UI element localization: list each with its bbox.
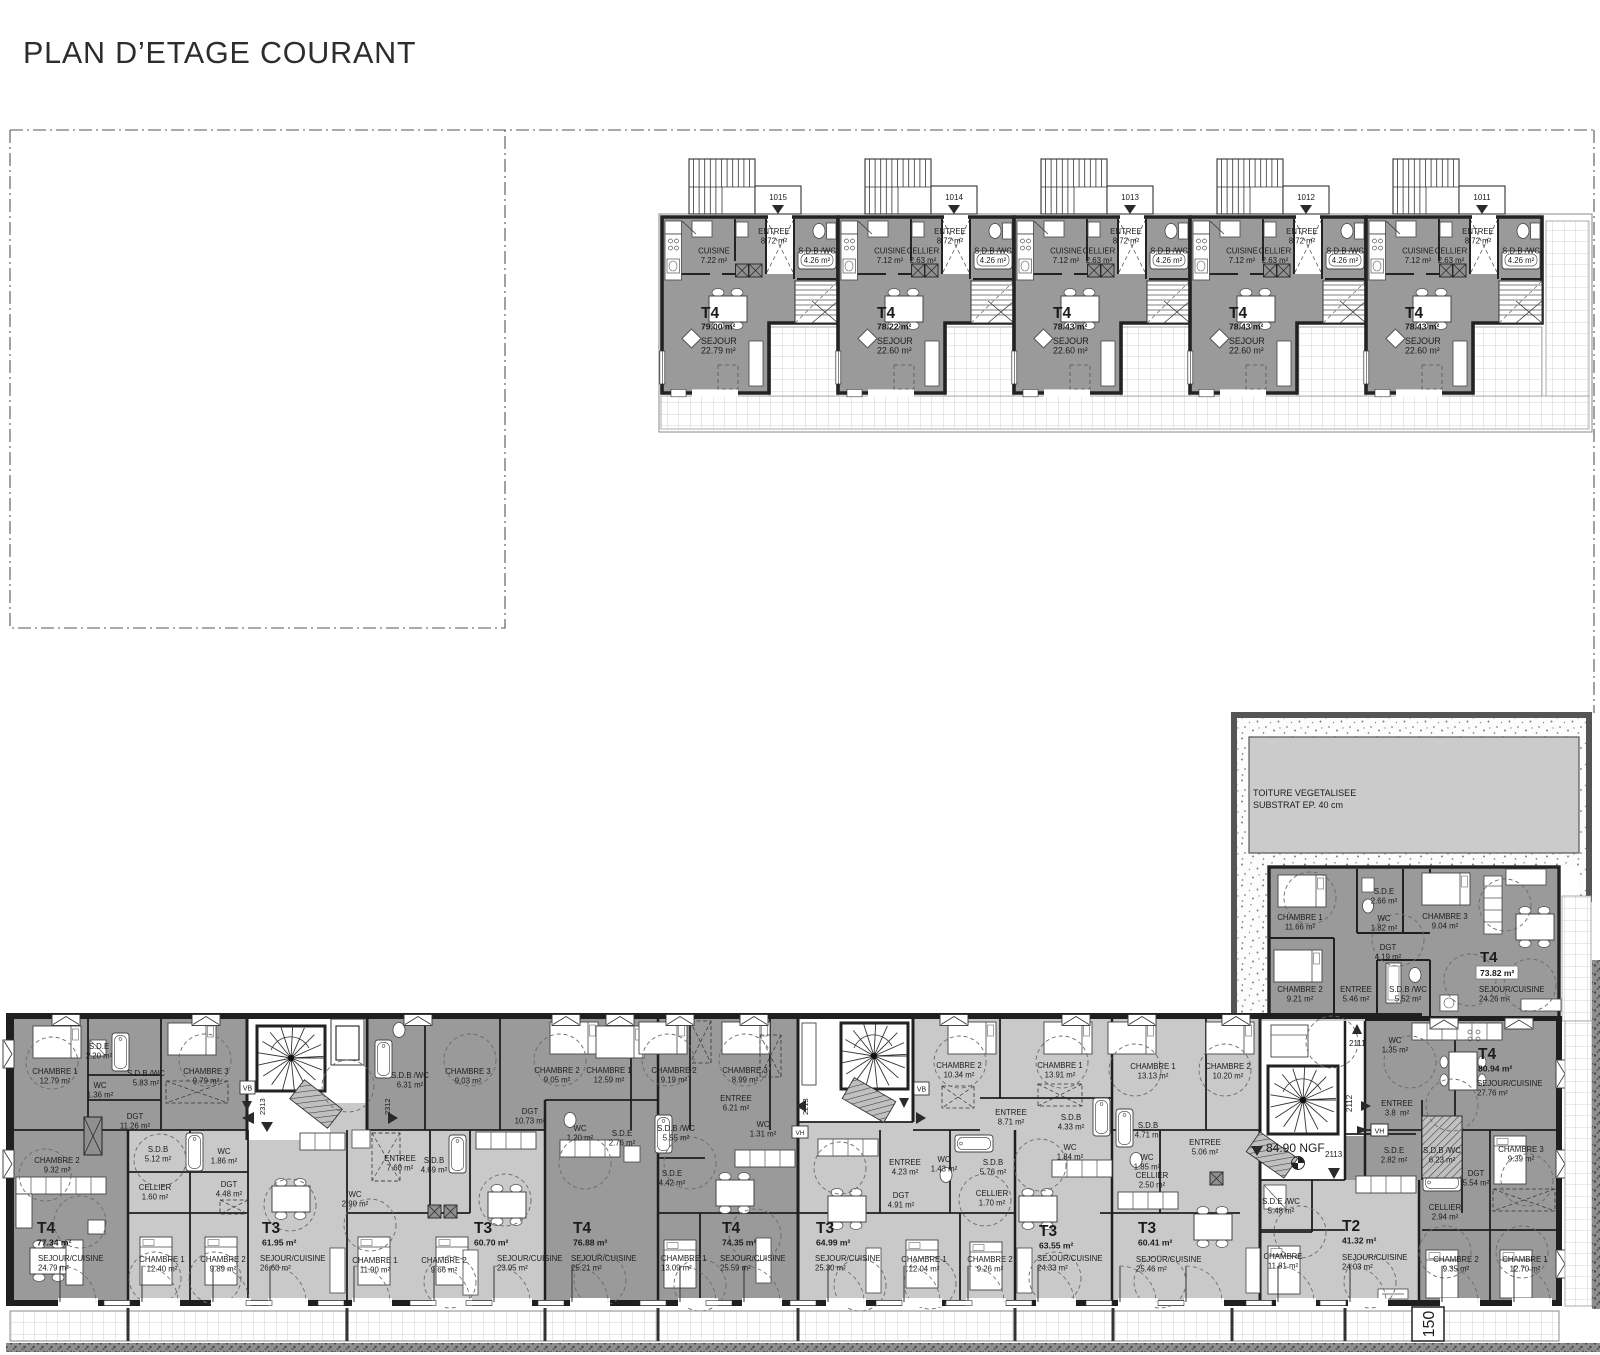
svg-text:12.70 m²: 12.70 m² (1510, 1264, 1541, 1273)
svg-text:DGT: DGT (1380, 943, 1397, 952)
svg-text:T3: T3 (1039, 1223, 1057, 1240)
svg-text:S.D.B: S.D.B (983, 1158, 1003, 1167)
svg-text:25.46 m²: 25.46 m² (1136, 1264, 1167, 1273)
svg-text:9.35 m²: 9.35 m² (1443, 1264, 1470, 1273)
svg-text:SEJOUR/CUISINE: SEJOUR/CUISINE (38, 1254, 103, 1263)
svg-text:5.12 m²: 5.12 m² (145, 1154, 172, 1163)
svg-text:5.46 m²: 5.46 m² (1343, 994, 1370, 1003)
svg-text:S.D.B /WC: S.D.B /WC (1389, 985, 1427, 994)
svg-text:22.60 m²: 22.60 m² (1053, 346, 1088, 356)
svg-text:DGT: DGT (1468, 1169, 1485, 1178)
svg-text:22.60 m²: 22.60 m² (1405, 346, 1440, 356)
svg-text:2.20 m²: 2.20 m² (86, 1051, 113, 1060)
svg-text:2113: 2113 (1325, 1150, 1343, 1159)
svg-text:2.90 m²: 2.90 m² (342, 1199, 369, 1208)
svg-text:76.88 m²: 76.88 m² (573, 1238, 608, 1248)
svg-text:CHAMBRE 3: CHAMBRE 3 (1498, 1145, 1544, 1154)
svg-text:CHAMBRE 1: CHAMBRE 1 (352, 1256, 398, 1265)
svg-text:DGT: DGT (221, 1180, 238, 1189)
svg-text:13.09 m²: 13.09 m² (661, 1263, 692, 1272)
svg-text:T4: T4 (1229, 305, 1247, 322)
svg-text:3.8 m²: 3.8 m² (1385, 1108, 1410, 1117)
svg-text:1.85 m²: 1.85 m² (1134, 1162, 1161, 1171)
svg-text:CHAMBRE 3: CHAMBRE 3 (1422, 912, 1468, 921)
svg-text:WC: WC (1389, 1036, 1402, 1045)
svg-text:WC: WC (757, 1120, 770, 1129)
svg-text:ENTREE: ENTREE (1189, 1138, 1221, 1147)
svg-text:CHAMBRE 1: CHAMBRE 1 (139, 1255, 185, 1264)
svg-text:CHAMBRE 1: CHAMBRE 1 (586, 1066, 632, 1075)
svg-text:23.95 m²: 23.95 m² (497, 1263, 528, 1272)
svg-text:S.D.B /WC: S.D.B /WC (1423, 1146, 1461, 1155)
svg-text:TOITURE VEGETALISEE: TOITURE VEGETALISEE (1253, 788, 1356, 798)
svg-text:1.43 m²: 1.43 m² (931, 1164, 958, 1173)
svg-text:1.70 m²: 1.70 m² (979, 1198, 1006, 1207)
svg-text:VH: VH (1375, 1129, 1385, 1136)
svg-text:PLAN D’ETAGE COURANT: PLAN D’ETAGE COURANT (23, 36, 416, 70)
svg-text:5.76 m²: 5.76 m² (980, 1167, 1007, 1176)
svg-text:SEJOUR/CUISINE: SEJOUR/CUISINE (1477, 1079, 1542, 1088)
svg-text:77.34 m²: 77.34 m² (37, 1238, 72, 1248)
svg-text:CHAMBRE 1: CHAMBRE 1 (661, 1254, 707, 1263)
svg-text:T4: T4 (722, 1220, 740, 1237)
svg-text:CELLIER: CELLIER (907, 247, 940, 256)
svg-text:1.36 m²: 1.36 m² (87, 1090, 114, 1099)
svg-text:5.54 m²: 5.54 m² (1463, 1178, 1490, 1187)
svg-text:2111: 2111 (1349, 1039, 1366, 1048)
svg-text:10.34 m²: 10.34 m² (944, 1070, 975, 1079)
svg-text:ENTREE: ENTREE (889, 1158, 921, 1167)
svg-text:9.19 m²: 9.19 m² (661, 1075, 688, 1084)
svg-text:WC: WC (938, 1155, 951, 1164)
svg-text:CELLIER: CELLIER (1136, 1171, 1169, 1180)
svg-text:4.26 m²: 4.26 m² (1508, 256, 1535, 265)
svg-text:1.86 m²: 1.86 m² (211, 1156, 238, 1165)
svg-text:CELLIER: CELLIER (976, 1189, 1009, 1198)
svg-text:SEJOUR/CUISINE: SEJOUR/CUISINE (815, 1254, 880, 1263)
svg-text:CHAMBRE 1: CHAMBRE 1 (1502, 1255, 1548, 1264)
svg-text:T4: T4 (701, 305, 719, 322)
svg-text:9.79 m²: 9.79 m² (193, 1076, 220, 1085)
svg-text:41.32 m²: 41.32 m² (1342, 1236, 1377, 1246)
svg-text:1011: 1011 (1473, 193, 1491, 202)
svg-text:WC: WC (349, 1190, 362, 1199)
svg-text:SEJOUR/CUISINE: SEJOUR/CUISINE (1479, 985, 1544, 994)
svg-text:24.03 m²: 24.03 m² (1342, 1262, 1373, 1271)
svg-text:WC: WC (1141, 1153, 1154, 1162)
svg-text:2313: 2313 (258, 1098, 267, 1115)
svg-text:ENTREE: ENTREE (1286, 227, 1318, 236)
svg-text:S.D.B: S.D.B (148, 1145, 168, 1154)
svg-text:SEJOUR/CUISINE: SEJOUR/CUISINE (571, 1254, 636, 1263)
svg-text:9.05 m²: 9.05 m² (544, 1075, 571, 1084)
svg-text:2112: 2112 (1345, 1094, 1354, 1112)
svg-text:CHAMBRE 1: CHAMBRE 1 (1037, 1061, 1083, 1070)
svg-text:T4: T4 (1478, 1046, 1496, 1063)
svg-text:9.39 m²: 9.39 m² (1508, 1154, 1535, 1163)
svg-text:SEJOUR/CUISINE: SEJOUR/CUISINE (1037, 1254, 1102, 1263)
svg-text:WC: WC (1064, 1143, 1077, 1152)
svg-text:ENTREE: ENTREE (384, 1154, 416, 1163)
svg-text:11.26 m²: 11.26 m² (120, 1121, 151, 1130)
svg-text:7.22 m²: 7.22 m² (701, 256, 728, 265)
svg-text:12.40 m²: 12.40 m² (147, 1264, 178, 1273)
svg-text:S.D.B /WC: S.D.B /WC (1326, 247, 1364, 256)
svg-text:CHAMBRE 1: CHAMBRE 1 (901, 1255, 947, 1264)
svg-text:SEJOUR/CUISINE: SEJOUR/CUISINE (1342, 1253, 1407, 1262)
svg-text:SEJOUR: SEJOUR (877, 336, 913, 346)
svg-text:60.70 m²: 60.70 m² (474, 1238, 509, 1248)
svg-text:WC: WC (574, 1124, 587, 1133)
svg-text:12.04 m²: 12.04 m² (909, 1264, 940, 1273)
svg-text:ENTREE: ENTREE (1340, 985, 1372, 994)
svg-text:CUISINE: CUISINE (1050, 247, 1082, 256)
svg-text:SEJOUR: SEJOUR (1405, 336, 1441, 346)
svg-text:9.66 m²: 9.66 m² (431, 1265, 458, 1274)
svg-text:9.03 m²: 9.03 m² (455, 1076, 482, 1085)
svg-text:CELLIER: CELLIER (1259, 247, 1292, 256)
svg-text:8.72 m²: 8.72 m² (1465, 236, 1492, 245)
svg-text:24.26 m²: 24.26 m² (1479, 994, 1510, 1003)
svg-text:CHAMBRE 1: CHAMBRE 1 (32, 1067, 78, 1076)
svg-text:CHAMBRE 1: CHAMBRE 1 (1130, 1062, 1176, 1071)
svg-text:6.23 m²: 6.23 m² (1429, 1155, 1456, 1164)
svg-text:6.21 m²: 6.21 m² (723, 1103, 750, 1112)
svg-text:SEJOUR/CUISINE: SEJOUR/CUISINE (497, 1254, 562, 1263)
svg-text:8.72 m²: 8.72 m² (1113, 236, 1140, 245)
svg-text:2.94 m²: 2.94 m² (1432, 1212, 1459, 1221)
svg-text:9.21 m²: 9.21 m² (1287, 994, 1314, 1003)
svg-text:8.99 m²: 8.99 m² (732, 1075, 759, 1084)
svg-text:2.82 m²: 2.82 m² (1381, 1155, 1408, 1164)
svg-text:ENTREE: ENTREE (995, 1108, 1027, 1117)
svg-text:26.60 m²: 26.60 m² (260, 1263, 291, 1272)
svg-text:CUISINE: CUISINE (1402, 247, 1434, 256)
svg-text:9.89 m²: 9.89 m² (210, 1264, 237, 1273)
svg-text:CHAMBRE: CHAMBRE (1264, 1252, 1303, 1261)
svg-text:2.63 m²: 2.63 m² (1262, 256, 1289, 265)
svg-text:22.60 m²: 22.60 m² (877, 346, 912, 356)
svg-text:SEJOUR: SEJOUR (1053, 336, 1089, 346)
svg-text:24.33 m²: 24.33 m² (1037, 1263, 1068, 1272)
svg-text:4.26 m²: 4.26 m² (1332, 256, 1359, 265)
svg-text:S.D.B /WC: S.D.B /WC (1150, 247, 1188, 256)
svg-text:VB: VB (243, 1086, 253, 1093)
svg-text:2.76 m²: 2.76 m² (609, 1138, 636, 1147)
svg-text:ENTREE: ENTREE (934, 227, 966, 236)
svg-text:7.12 m²: 7.12 m² (1405, 256, 1432, 265)
svg-text:CHAMBRE 3: CHAMBRE 3 (445, 1067, 491, 1076)
svg-text:S.D.B /WC: S.D.B /WC (1502, 247, 1540, 256)
svg-text:13.13 m²: 13.13 m² (1138, 1071, 1169, 1080)
svg-text:25.30 m²: 25.30 m² (815, 1263, 846, 1272)
svg-text:CHAMBRE 3: CHAMBRE 3 (183, 1067, 229, 1076)
svg-text:T4: T4 (1405, 305, 1423, 322)
svg-text:13.91 m²: 13.91 m² (1045, 1070, 1076, 1079)
svg-text:T3: T3 (474, 1220, 492, 1237)
svg-text:1013: 1013 (1121, 193, 1139, 202)
svg-text:2.66 m²: 2.66 m² (1371, 896, 1398, 905)
svg-text:WC: WC (94, 1081, 107, 1090)
svg-text:4.69 m²: 4.69 m² (421, 1165, 448, 1174)
svg-text:12.79 m²: 12.79 m² (40, 1076, 71, 1085)
svg-text:S.D.B /WC: S.D.B /WC (657, 1124, 695, 1133)
svg-text:64.99 m²: 64.99 m² (816, 1238, 851, 1248)
svg-text:S.D.E: S.D.E (1374, 887, 1394, 896)
svg-text:CUISINE: CUISINE (874, 247, 906, 256)
svg-text:10.73 m²: 10.73 m² (515, 1116, 546, 1125)
svg-text:4.33 m²: 4.33 m² (1058, 1122, 1085, 1131)
svg-text:SEJOUR/CUISINE: SEJOUR/CUISINE (260, 1254, 325, 1263)
svg-text:27.76 m²: 27.76 m² (1477, 1088, 1508, 1097)
svg-text:SEJOUR/CUISINE: SEJOUR/CUISINE (1136, 1255, 1201, 1264)
svg-text:78.43 m²: 78.43 m² (1053, 322, 1088, 332)
svg-text:8.72 m²: 8.72 m² (1289, 236, 1316, 245)
svg-text:SEJOUR: SEJOUR (1229, 336, 1265, 346)
svg-text:S.D.E: S.D.E (89, 1042, 109, 1051)
svg-text:4.19 m²: 4.19 m² (1375, 952, 1402, 961)
svg-text:78.43 m²: 78.43 m² (1405, 322, 1440, 332)
svg-text:1012: 1012 (1297, 193, 1315, 202)
svg-text:ENTREE: ENTREE (1110, 227, 1142, 236)
svg-text:CUISINE: CUISINE (698, 247, 730, 256)
svg-text:CHAMBRE 2: CHAMBRE 2 (936, 1061, 982, 1070)
svg-text:10.20 m²: 10.20 m² (1213, 1071, 1244, 1080)
svg-text:ENTREE: ENTREE (758, 227, 790, 236)
svg-text:73.82 m²: 73.82 m² (1480, 968, 1515, 978)
svg-text:CHAMBRE 2: CHAMBRE 2 (34, 1156, 80, 1165)
svg-text:CELLIER: CELLIER (1435, 247, 1468, 256)
svg-text:T4: T4 (877, 305, 895, 322)
svg-text:S.D.B /WC: S.D.B /WC (127, 1069, 165, 1078)
svg-text:9.32 m²: 9.32 m² (44, 1165, 71, 1174)
svg-text:2312: 2312 (383, 1098, 392, 1115)
svg-text:VH: VH (795, 1130, 804, 1137)
svg-text:T3: T3 (262, 1220, 280, 1237)
svg-text:7.12 m²: 7.12 m² (1053, 256, 1080, 265)
svg-text:ENTREE: ENTREE (1381, 1099, 1413, 1108)
svg-text:S.D.E: S.D.E (612, 1129, 632, 1138)
svg-text:12.59 m²: 12.59 m² (594, 1075, 625, 1084)
svg-text:CELLIER: CELLIER (1429, 1203, 1462, 1212)
svg-text:S.D.E: S.D.E (662, 1169, 682, 1178)
svg-text:CHAMBRE 2: CHAMBRE 2 (1277, 985, 1323, 994)
svg-text:78.22 m²: 78.22 m² (877, 322, 912, 332)
svg-text:5.52 m²: 5.52 m² (1395, 994, 1422, 1003)
svg-text:1.31 m²: 1.31 m² (750, 1129, 777, 1138)
svg-text:DGT: DGT (522, 1107, 539, 1116)
svg-text:CELLIER: CELLIER (139, 1183, 172, 1192)
svg-text:4.23 m²: 4.23 m² (892, 1167, 919, 1176)
svg-text:1.20 m²: 1.20 m² (567, 1133, 594, 1142)
svg-text:25.21 m²: 25.21 m² (571, 1263, 602, 1272)
svg-text:9.26 m²: 9.26 m² (977, 1264, 1004, 1273)
svg-text:T4: T4 (37, 1220, 55, 1237)
svg-text:1.82 m²: 1.82 m² (1371, 923, 1398, 932)
svg-text:S.D.E /WC: S.D.E /WC (1262, 1197, 1300, 1206)
svg-text:4.26 m²: 4.26 m² (980, 256, 1007, 265)
svg-text:60.41 m²: 60.41 m² (1138, 1238, 1173, 1248)
svg-text:CUISINE: CUISINE (1226, 247, 1258, 256)
svg-text:1.60 m²: 1.60 m² (142, 1192, 169, 1201)
svg-text:63.55 m²: 63.55 m² (1039, 1241, 1074, 1251)
svg-text:4.71 m²: 4.71 m² (1135, 1130, 1162, 1139)
svg-text:S.D.B: S.D.B (1061, 1113, 1081, 1122)
svg-text:74.35 m²: 74.35 m² (722, 1238, 757, 1248)
svg-text:CHAMBRE 2: CHAMBRE 2 (1433, 1255, 1479, 1264)
svg-text:6.31 m²: 6.31 m² (397, 1080, 424, 1089)
svg-text:5.06 m²: 5.06 m² (1192, 1147, 1219, 1156)
svg-text:CHAMBRE 2: CHAMBRE 2 (967, 1255, 1013, 1264)
svg-text:7.60 m²: 7.60 m² (387, 1163, 414, 1172)
svg-text:S.D.B /WC: S.D.B /WC (798, 247, 836, 256)
svg-text:2.63 m²: 2.63 m² (1438, 256, 1465, 265)
svg-text:S.D.B: S.D.B (1138, 1121, 1158, 1130)
svg-text:SUBSTRAT EP. 40 cm: SUBSTRAT EP. 40 cm (1253, 800, 1343, 810)
svg-text:11.81 m²: 11.81 m² (1268, 1261, 1299, 1270)
svg-text:78.43 m²: 78.43 m² (1229, 322, 1264, 332)
svg-text:T4: T4 (1480, 949, 1498, 966)
svg-text:SEJOUR: SEJOUR (701, 336, 737, 346)
svg-text:1.35 m²: 1.35 m² (1382, 1045, 1409, 1054)
svg-text:8.72 m²: 8.72 m² (761, 236, 788, 245)
svg-text:9.04 m²: 9.04 m² (1432, 921, 1459, 930)
svg-text:61.95 m²: 61.95 m² (262, 1238, 297, 1248)
svg-text:4.48 m²: 4.48 m² (216, 1189, 243, 1198)
svg-text:4.42 m²: 4.42 m² (659, 1178, 686, 1187)
svg-text:2.50 m²: 2.50 m² (1139, 1180, 1166, 1189)
svg-text:22.79 m²: 22.79 m² (701, 346, 736, 356)
svg-text:SEJOUR/CUISINE: SEJOUR/CUISINE (720, 1254, 785, 1263)
svg-text:11.90 m²: 11.90 m² (360, 1265, 391, 1274)
svg-text:84.90 NGF: 84.90 NGF (1266, 1141, 1325, 1155)
svg-text:S.D.B: S.D.B (424, 1156, 444, 1165)
svg-text:DGT: DGT (127, 1112, 144, 1121)
svg-text:1.84 m²: 1.84 m² (1057, 1152, 1084, 1161)
svg-text:CHAMBRE 2: CHAMBRE 2 (1205, 1062, 1251, 1071)
svg-text:CELLIER: CELLIER (1083, 247, 1116, 256)
svg-text:CHAMBRE 1: CHAMBRE 1 (1277, 913, 1323, 922)
svg-text:2.63 m²: 2.63 m² (910, 256, 937, 265)
svg-text:80.94 m²: 80.94 m² (1478, 1064, 1513, 1074)
svg-text:ENTREE: ENTREE (720, 1094, 752, 1103)
svg-text:S.D.B /WC: S.D.B /WC (391, 1071, 429, 1080)
svg-text:WC: WC (1378, 914, 1391, 923)
svg-text:ENTREE: ENTREE (1462, 227, 1494, 236)
svg-text:T3: T3 (816, 1220, 834, 1237)
svg-text:8.72 m²: 8.72 m² (937, 236, 964, 245)
svg-text:4.91 m²: 4.91 m² (888, 1200, 915, 1209)
svg-text:S.D.E: S.D.E (1384, 1146, 1404, 1155)
svg-text:DGT: DGT (893, 1191, 910, 1200)
svg-text:4.26 m²: 4.26 m² (804, 256, 831, 265)
svg-text:T3: T3 (1138, 1220, 1156, 1237)
svg-text:79.00 m²: 79.00 m² (701, 322, 736, 332)
svg-text:T4: T4 (573, 1220, 591, 1237)
svg-text:5.83 m²: 5.83 m² (133, 1078, 160, 1087)
svg-text:CHAMBRE 2: CHAMBRE 2 (534, 1066, 580, 1075)
svg-text:2.63 m²: 2.63 m² (1086, 256, 1113, 265)
svg-text:5.55 m²: 5.55 m² (663, 1133, 690, 1142)
svg-text:7.12 m²: 7.12 m² (1229, 256, 1256, 265)
svg-text:24.79 m²: 24.79 m² (38, 1263, 69, 1272)
svg-text:11.66 m²: 11.66 m² (1285, 922, 1316, 931)
svg-text:WC: WC (218, 1147, 231, 1156)
svg-text:150: 150 (1421, 1311, 1438, 1338)
svg-text:1014: 1014 (945, 193, 963, 202)
svg-text:T2: T2 (1342, 1218, 1360, 1235)
svg-text:22.60 m²: 22.60 m² (1229, 346, 1264, 356)
svg-text:25.59 m²: 25.59 m² (720, 1263, 751, 1272)
svg-text:CHAMBRE 2: CHAMBRE 2 (421, 1256, 467, 1265)
svg-text:5.48 m²: 5.48 m² (1268, 1206, 1295, 1215)
svg-text:CHAMBRE 2: CHAMBRE 2 (200, 1255, 246, 1264)
svg-text:S.D.B /WC: S.D.B /WC (974, 247, 1012, 256)
svg-text:T4: T4 (1053, 305, 1071, 322)
svg-text:1015: 1015 (769, 193, 787, 202)
svg-text:8.71 m²: 8.71 m² (998, 1117, 1025, 1126)
svg-text:7.12 m²: 7.12 m² (877, 256, 904, 265)
svg-text:4.26 m²: 4.26 m² (1156, 256, 1183, 265)
svg-text:CHAMBRE 2: CHAMBRE 2 (651, 1066, 697, 1075)
svg-text:CHAMBRE 3: CHAMBRE 3 (722, 1066, 768, 1075)
svg-text:VB: VB (917, 1087, 927, 1094)
